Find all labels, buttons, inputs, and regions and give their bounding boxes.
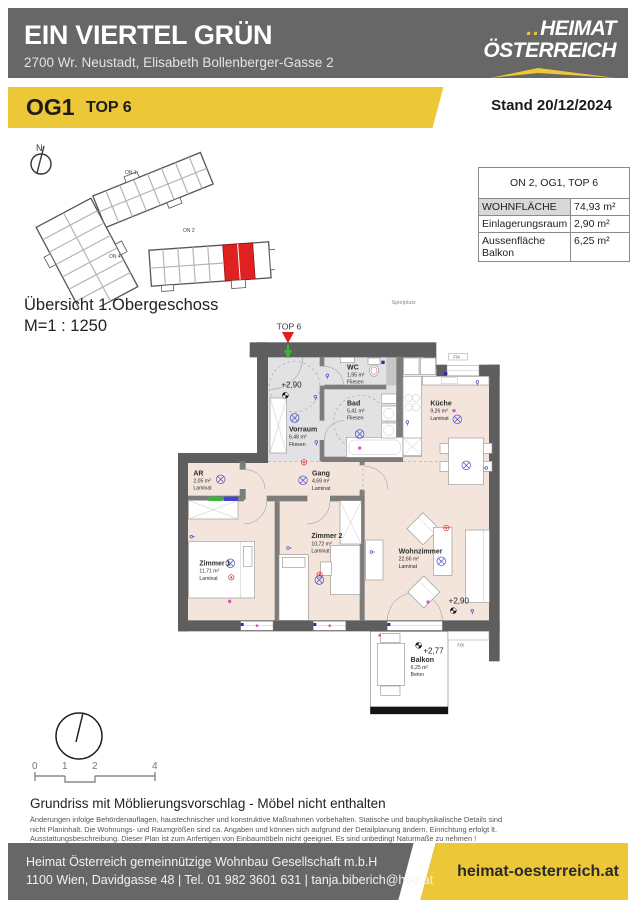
unit-label: TOP 6 bbox=[86, 99, 132, 117]
info-value-aussenflaeche: 6,25 m² bbox=[571, 233, 629, 261]
level-balcony: +2,77 bbox=[423, 646, 444, 655]
svg-text:Laminat: Laminat bbox=[199, 576, 218, 582]
unit-info-table: ON 2, OG1, TOP 6 WOHNFLÄCHE 74,93 m² Ein… bbox=[478, 167, 630, 262]
svg-text:6,48 m²: 6,48 m² bbox=[289, 435, 307, 441]
svg-text:Wohnzimmer: Wohnzimmer bbox=[399, 548, 443, 555]
company-logo: ..HEIMAT ÖSTERREICH bbox=[483, 18, 616, 84]
svg-text:6,25 m²: 6,25 m² bbox=[411, 665, 429, 671]
scale-tick-1: 1 bbox=[62, 761, 68, 772]
svg-text:Fliesen: Fliesen bbox=[347, 380, 364, 386]
footer-company: Heimat Österreich gemeinnützige Wohnbau … bbox=[26, 855, 377, 869]
info-label-einlagerungsraum: Einlagerungsraum bbox=[479, 216, 571, 232]
footer-website[interactable]: heimat-oesterreich.at bbox=[440, 863, 628, 881]
building-on1 bbox=[91, 147, 216, 233]
fix-window-right-label: FIX bbox=[457, 643, 464, 648]
building-on2-label: ON 2 bbox=[183, 228, 195, 234]
info-label-wohnflaeche: WOHNFLÄCHE bbox=[479, 199, 571, 215]
footer-contact: 1100 Wien, Davidgasse 48 | Tel. 01 982 3… bbox=[26, 873, 433, 887]
site-context-label: Spielplatz bbox=[391, 300, 416, 306]
overview-scale: M=1 : 1250 bbox=[24, 317, 107, 336]
svg-text:Laminat: Laminat bbox=[311, 549, 330, 555]
logo-swoosh-icon bbox=[490, 66, 616, 79]
info-value-wohnflaeche: 74,93 m² bbox=[571, 199, 629, 215]
north-arrow-icon: N bbox=[31, 143, 51, 174]
window: FIX bbox=[447, 353, 479, 375]
building-on4-label: ON 4 bbox=[109, 254, 121, 260]
logo-line1: HEIMAT bbox=[540, 17, 616, 40]
disclaimer-line1: Änderungen infolge Behördenauflagen, hau… bbox=[30, 815, 610, 825]
wardrobe bbox=[270, 398, 287, 453]
unit-marker-arrow-icon bbox=[282, 332, 294, 343]
site-overview-map: N bbox=[25, 142, 275, 307]
balcony-area bbox=[370, 631, 448, 714]
svg-text:Zimmer 1: Zimmer 1 bbox=[199, 560, 230, 567]
svg-text:Zimmer 2: Zimmer 2 bbox=[311, 533, 342, 540]
info-label-aussenflaeche: Aussenfläche Balkon bbox=[479, 233, 571, 261]
svg-text:Bad: Bad bbox=[347, 400, 360, 407]
svg-text:5,41 m²: 5,41 m² bbox=[347, 408, 365, 414]
table-row: Aussenfläche Balkon 6,25 m² bbox=[479, 233, 629, 261]
plan-date: Stand 20/12/2024 bbox=[491, 97, 612, 114]
svg-text:AR: AR bbox=[193, 470, 203, 477]
scale-bar: 0 1 2 4 bbox=[28, 758, 168, 790]
floorplan-page: EIN VIERTEL GRÜN 2700 Wr. Neustadt, Elis… bbox=[0, 0, 636, 900]
svg-text:4,69 m²: 4,69 m² bbox=[312, 479, 330, 485]
table-row: WOHNFLÄCHE 74,93 m² bbox=[479, 199, 629, 216]
floor-label: OG1 bbox=[26, 94, 75, 121]
svg-text:Vorraum: Vorraum bbox=[289, 426, 317, 433]
furnishing-note-title: Grundriss mit Möblierungsvorschlag - Möb… bbox=[30, 796, 386, 811]
level-entry: +2,90 bbox=[281, 380, 302, 389]
level-living: +2,90 bbox=[449, 596, 470, 605]
footer-bar: Heimat Österreich gemeinnützige Wohnbau … bbox=[8, 843, 628, 900]
svg-text:Laminat: Laminat bbox=[430, 416, 449, 422]
project-address: 2700 Wr. Neustadt, Elisabeth Bollenberge… bbox=[24, 55, 334, 70]
svg-text:11,71 m²: 11,71 m² bbox=[199, 569, 219, 575]
svg-text:Fliesen: Fliesen bbox=[289, 442, 306, 448]
scale-tick-2: 2 bbox=[92, 761, 98, 772]
scale-tick-0: 0 bbox=[32, 761, 38, 772]
fix-window-top-label: FIX bbox=[453, 354, 460, 359]
header-bar: EIN VIERTEL GRÜN 2700 Wr. Neustadt, Elis… bbox=[8, 8, 628, 78]
svg-text:22,66 m²: 22,66 m² bbox=[399, 557, 420, 563]
svg-text:Gang: Gang bbox=[312, 470, 330, 477]
building-on2 bbox=[149, 241, 275, 294]
room-label-gang: Gang 4,69 m² Laminat bbox=[312, 470, 331, 492]
compass-icon bbox=[53, 710, 105, 762]
svg-text:9,26 m²: 9,26 m² bbox=[430, 409, 448, 415]
info-value-einlagerungsraum: 2,90 m² bbox=[571, 216, 629, 232]
logo-dots-icon: .. bbox=[526, 17, 540, 40]
north-label: N bbox=[36, 143, 43, 153]
svg-text:Beton: Beton bbox=[411, 672, 425, 678]
svg-text:Fliesen: Fliesen bbox=[347, 415, 364, 421]
svg-text:Küche: Küche bbox=[430, 400, 452, 407]
project-title: EIN VIERTEL GRÜN bbox=[24, 20, 272, 51]
svg-text:Balkon: Balkon bbox=[411, 657, 434, 664]
table-row: Einlagerungsraum 2,90 m² bbox=[479, 216, 629, 233]
svg-text:2,05 m²: 2,05 m² bbox=[193, 478, 211, 484]
svg-text:Laminat: Laminat bbox=[399, 564, 418, 570]
svg-text:Laminat: Laminat bbox=[312, 486, 331, 492]
logo-line2: ÖSTERREICH bbox=[483, 40, 616, 62]
info-table-header: ON 2, OG1, TOP 6 bbox=[479, 168, 629, 199]
scale-tick-4: 4 bbox=[152, 761, 158, 772]
svg-text:1,95 m²: 1,95 m² bbox=[347, 373, 365, 379]
svg-text:Laminat: Laminat bbox=[193, 485, 212, 491]
svg-text:10,72 m²: 10,72 m² bbox=[311, 541, 332, 547]
svg-text:WC: WC bbox=[347, 365, 359, 372]
floor-plan: FIX FIX bbox=[178, 298, 508, 728]
building-on1-label: ON 1 bbox=[125, 170, 137, 176]
disclaimer-line2: nicht Planinhalt. Die Wohnungs- und Raum… bbox=[30, 825, 610, 835]
unit-marker-label: TOP 6 bbox=[277, 322, 302, 332]
